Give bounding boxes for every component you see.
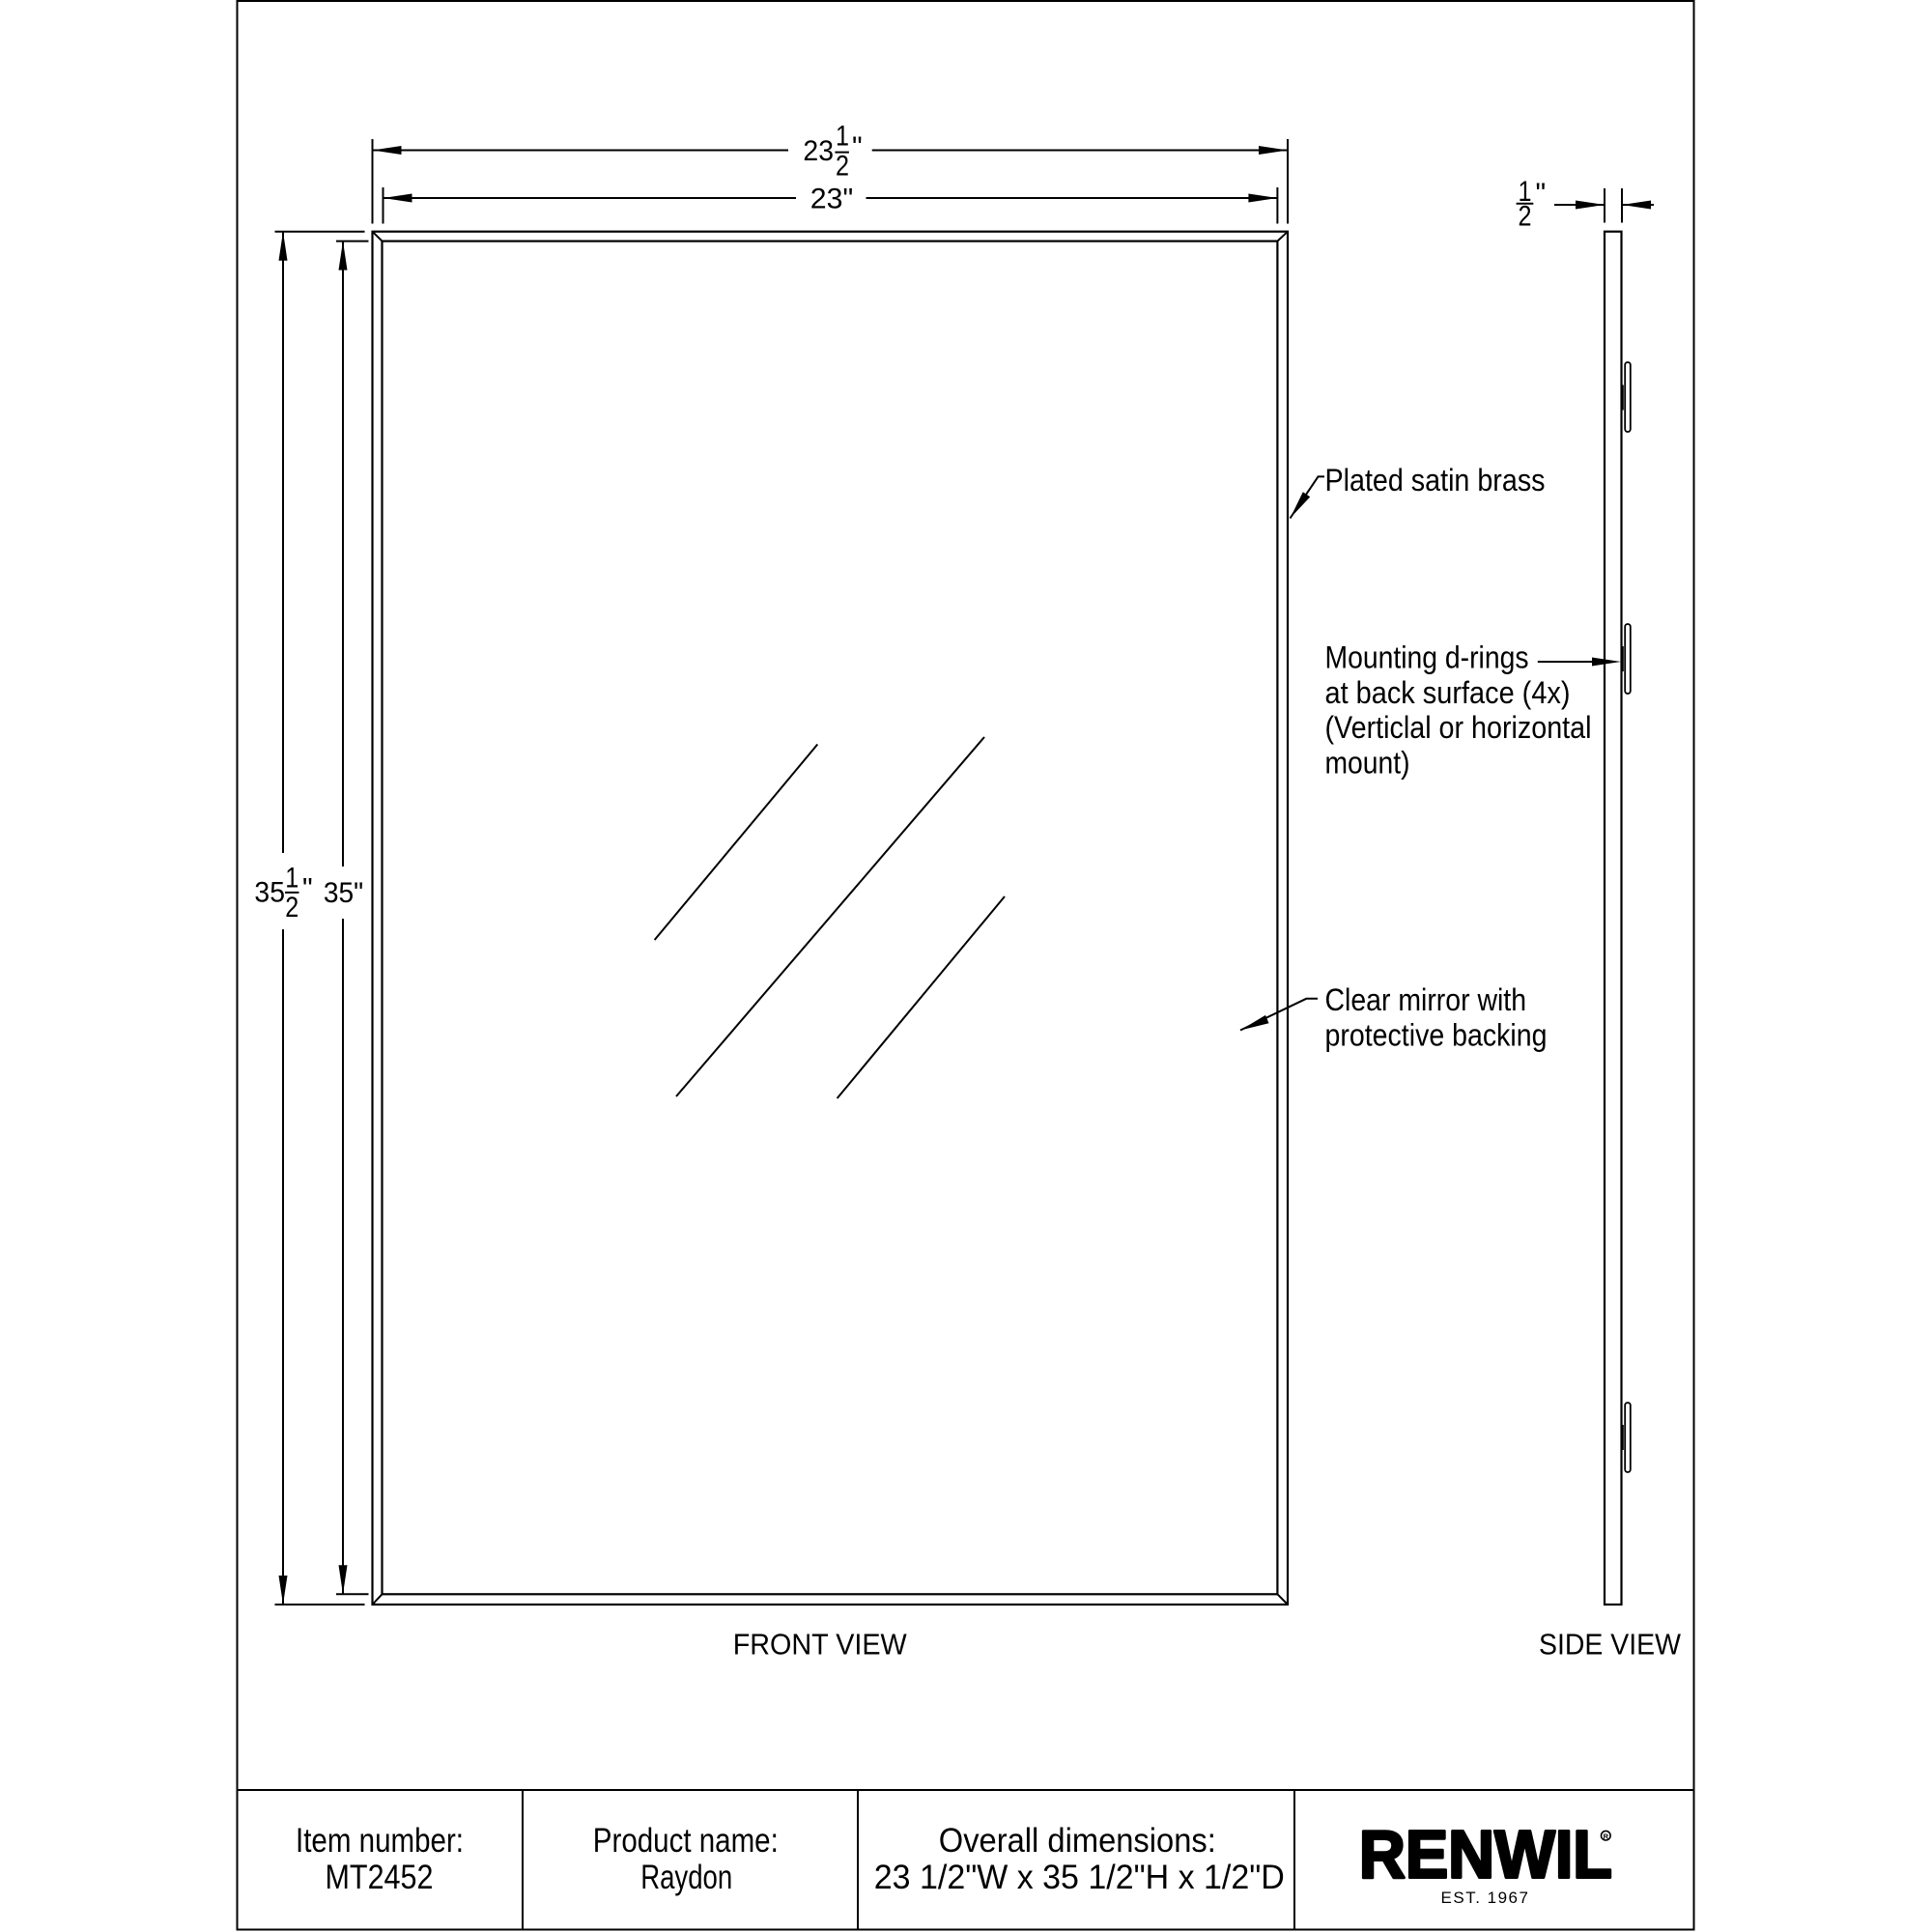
svg-text:Clear mirror with: Clear mirror with [1325, 982, 1527, 1017]
svg-text:RENWIL: RENWIL [1359, 1817, 1612, 1892]
svg-text:MT2452: MT2452 [326, 1859, 434, 1896]
svg-text:1: 1 [285, 862, 298, 894]
svg-text:EST. 1967: EST. 1967 [1441, 1889, 1530, 1907]
svg-text:23 1/2"W x 35 1/2"H x 1/2"D: 23 1/2"W x 35 1/2"H x 1/2"D [874, 1859, 1285, 1896]
svg-text:23": 23" [810, 184, 853, 215]
svg-text:2: 2 [836, 151, 849, 183]
svg-text:at back surface (4x): at back surface (4x) [1325, 675, 1571, 710]
svg-text:Mounting d-rings: Mounting d-rings [1325, 640, 1529, 675]
svg-text:": " [852, 131, 863, 163]
svg-text:FRONT VIEW: FRONT VIEW [733, 1627, 908, 1661]
svg-text:R: R [1604, 1833, 1609, 1841]
svg-text:(Verticlal or horizontal: (Verticlal or horizontal [1325, 710, 1592, 745]
svg-text:SIDE VIEW: SIDE VIEW [1539, 1627, 1682, 1661]
svg-text:": " [302, 873, 313, 905]
svg-text:Item number:: Item number: [296, 1822, 464, 1860]
svg-text:23: 23 [803, 135, 834, 167]
svg-text:mount): mount) [1325, 745, 1410, 780]
svg-text:35: 35 [254, 877, 285, 909]
svg-text:protective backing: protective backing [1325, 1017, 1548, 1052]
svg-text:35": 35" [324, 877, 363, 909]
svg-text:Product name:: Product name: [593, 1822, 779, 1860]
svg-text:Raydon: Raydon [640, 1859, 732, 1896]
svg-text:2: 2 [1519, 200, 1532, 232]
svg-text:Overall dimensions:: Overall dimensions: [939, 1822, 1216, 1860]
svg-text:2: 2 [285, 892, 298, 923]
svg-text:Plated satin brass: Plated satin brass [1325, 463, 1546, 497]
svg-text:1: 1 [836, 121, 849, 153]
svg-text:": " [1536, 178, 1547, 210]
